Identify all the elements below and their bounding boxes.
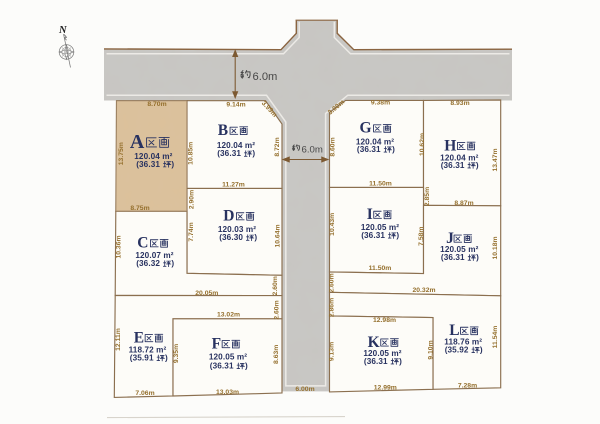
svg-text:13.02m: 13.02m (217, 312, 240, 319)
svg-text:(36.31: (36.31 (136, 160, 160, 169)
svg-text:): ) (254, 233, 257, 242)
svg-text:12.98m: 12.98m (373, 317, 396, 324)
svg-text:8.75m: 8.75m (130, 205, 149, 212)
svg-text:(36.31: (36.31 (364, 357, 388, 366)
svg-text:11.27m: 11.27m (222, 182, 245, 189)
svg-text:12.11m: 12.11m (115, 328, 122, 351)
svg-text:10.18m: 10.18m (492, 236, 499, 259)
svg-text:B: B (218, 122, 228, 139)
svg-text:): ) (165, 354, 168, 363)
svg-text:10.36m: 10.36m (116, 235, 123, 258)
svg-text:C: C (137, 235, 148, 252)
svg-text:(36.31: (36.31 (217, 149, 241, 158)
svg-text:A: A (130, 131, 145, 153)
svg-text:7.58m: 7.58m (418, 227, 425, 246)
svg-text:10.85m: 10.85m (188, 142, 195, 165)
svg-text:10.43m: 10.43m (329, 213, 336, 236)
svg-text:): ) (480, 346, 483, 355)
svg-text:(36.31: (36.31 (441, 161, 465, 170)
svg-text:9.14m: 9.14m (226, 102, 245, 109)
svg-text:13.75m: 13.75m (118, 142, 125, 165)
svg-text:G: G (360, 120, 372, 137)
svg-text:(36.32: (36.32 (136, 259, 160, 268)
svg-text:I: I (367, 206, 373, 223)
svg-text:12.99m: 12.99m (374, 385, 397, 392)
svg-text:6.00m: 6.00m (295, 386, 314, 393)
svg-text:7.06m: 7.06m (135, 390, 154, 397)
svg-text:8.72m: 8.72m (274, 137, 281, 156)
svg-text:): ) (171, 259, 174, 268)
svg-text:): ) (245, 362, 248, 371)
svg-text:(36.30: (36.30 (219, 233, 243, 242)
svg-text:9.13m: 9.13m (329, 342, 336, 361)
svg-text:7.28m: 7.28m (458, 383, 477, 390)
svg-text:7.74m: 7.74m (188, 222, 195, 241)
svg-text:6.0m: 6.0m (302, 145, 323, 156)
svg-text:120.05 m²: 120.05 m² (209, 353, 247, 362)
svg-text:): ) (171, 160, 174, 169)
svg-text:10.62m: 10.62m (419, 133, 426, 156)
svg-text:): ) (399, 357, 402, 366)
svg-text:): ) (392, 145, 395, 154)
svg-text:6.0m: 6.0m (253, 71, 278, 83)
svg-text:(36.31: (36.31 (361, 231, 385, 240)
svg-text:(36.31: (36.31 (210, 362, 234, 371)
svg-text:2.90m: 2.90m (188, 190, 195, 209)
svg-text:(36.31: (36.31 (357, 145, 381, 154)
svg-text:9.35m: 9.35m (173, 344, 180, 363)
svg-text:8.93m: 8.93m (450, 100, 469, 107)
svg-text:): ) (252, 149, 255, 158)
svg-text:11.54m: 11.54m (492, 326, 499, 349)
svg-text:20.32m: 20.32m (412, 287, 435, 294)
svg-text:8.60m: 8.60m (330, 137, 337, 156)
svg-text:9.10m: 9.10m (428, 340, 435, 359)
svg-text:E: E (134, 329, 144, 346)
svg-text:H: H (444, 137, 456, 154)
svg-text:20.05m: 20.05m (195, 290, 218, 297)
svg-text:13.47m: 13.47m (492, 148, 499, 171)
svg-text:N: N (58, 25, 67, 36)
svg-text:8.87m: 8.87m (454, 200, 473, 207)
svg-text:(35.92: (35.92 (445, 346, 469, 355)
svg-text:11.50m: 11.50m (369, 265, 392, 272)
svg-text:(36.31: (36.31 (441, 253, 465, 262)
svg-text:11.50m: 11.50m (369, 180, 392, 187)
svg-text:(35.91: (35.91 (130, 354, 154, 363)
svg-text:8.70m: 8.70m (147, 101, 166, 108)
svg-text:): ) (396, 231, 399, 240)
svg-text:10.64m: 10.64m (274, 224, 281, 247)
svg-text:2.85m: 2.85m (424, 187, 431, 206)
svg-text:2.86m: 2.86m (329, 298, 336, 317)
svg-text:): ) (476, 253, 479, 262)
svg-text:8.63m: 8.63m (273, 345, 280, 364)
svg-text:F: F (212, 335, 221, 352)
svg-text:2.60m: 2.60m (272, 276, 279, 295)
svg-text:D: D (223, 208, 234, 225)
svg-text:9.38m: 9.38m (371, 100, 390, 107)
svg-text:2.60m: 2.60m (273, 300, 280, 319)
svg-text:): ) (476, 161, 479, 170)
svg-text:2.60m: 2.60m (329, 273, 336, 292)
svg-text:13.03m: 13.03m (216, 389, 239, 396)
